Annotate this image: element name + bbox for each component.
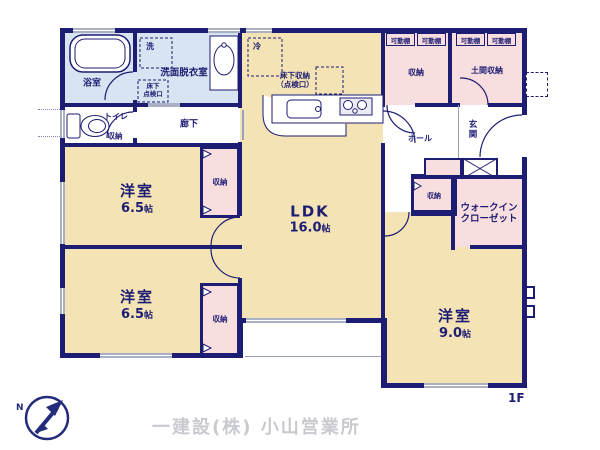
toilet-label: トイレ (104, 112, 128, 122)
toilet-tank (67, 114, 80, 138)
wic-line2: クローゼット (460, 214, 517, 225)
underfloor-line1: 床下収納 (276, 71, 314, 80)
room-size: 6.5 (121, 201, 144, 216)
doma-door-arc (460, 78, 488, 105)
bath-label: 浴室 (83, 79, 101, 90)
bath-door-arc (105, 72, 133, 100)
genkan-label: 玄 関 (469, 120, 478, 140)
room-name: LDK (289, 203, 330, 221)
washroom-label: 洗面脱衣室 (160, 67, 208, 78)
room-size: 16.0 (289, 221, 321, 236)
company-name: 一建設(株) 小山営業所 (152, 413, 361, 439)
genkan-char2: 関 (469, 130, 478, 140)
closet-door-tick (203, 344, 211, 352)
bedroom3-label: 洋室 9.0帖 (438, 305, 472, 341)
faucet-icon (316, 107, 321, 112)
room-size-unit: 帖 (144, 311, 153, 321)
closet-door-tick (203, 150, 211, 158)
hall-storage-label: 収納 (427, 192, 441, 200)
bedroom3-door-arc (385, 212, 409, 236)
burner-icon (344, 101, 353, 110)
compass-north-letter: N (16, 403, 24, 413)
closet-door-tick (203, 288, 211, 296)
vanity-faucet-icon (222, 43, 226, 47)
underfloor-ldk-label: 床下収納 （点検口） (276, 71, 314, 89)
fridge-label: 冷 (253, 42, 261, 52)
underfloor-line2: 点検口 (143, 91, 163, 99)
bedroom1-label: 洋室 6.5帖 (120, 180, 154, 216)
entrance-door-arc (480, 115, 522, 157)
burner-icon (358, 101, 367, 110)
underfloor-line2: （点検口） (276, 80, 314, 89)
compass-icon: N (16, 397, 68, 439)
ldk-label: LDK 16.0帖 (289, 203, 330, 236)
underfloor-hatch-ldk (316, 67, 343, 94)
room-size-unit: 帖 (322, 225, 331, 235)
room-size: 9.0 (439, 326, 462, 341)
genkan-char1: 玄 (469, 120, 478, 130)
wic-line1: ウォークイン (460, 203, 517, 214)
washer-dashed-box (140, 38, 172, 68)
burner-icon (353, 109, 357, 113)
toilet-storage-label: 収納 (108, 132, 123, 141)
room-name: 洋室 (120, 286, 154, 307)
hall-label: ホール (408, 134, 432, 144)
bedroom2-closet-label: 収納 (213, 315, 228, 324)
floor-tag: 1F (508, 391, 525, 405)
washer-label: 洗 (146, 42, 154, 52)
room-size-unit: 帖 (144, 205, 153, 215)
bedroom1-door-arc (211, 217, 240, 246)
doma-storage-label: 土間収納 (471, 66, 503, 76)
bedroom2-label: 洋室 6.5帖 (120, 286, 154, 322)
room-size: 6.5 (121, 307, 144, 322)
bedroom2-door-arc (211, 249, 240, 278)
room-size-unit: 帖 (462, 330, 471, 340)
bedroom1-closet-label: 収納 (213, 178, 228, 187)
storage-door-arc (387, 105, 415, 133)
closet-door-tick (203, 206, 211, 214)
room-name: 洋室 (120, 180, 154, 201)
storage-top-label: 収納 (408, 68, 424, 78)
wic-label: ウォークイン クローゼット (460, 203, 517, 226)
floorplan-page: 可動棚 可動棚 可動棚 可動棚 (0, 0, 600, 450)
closet-door-tick (414, 182, 421, 190)
underfloor-washroom-label: 床下 点検口 (143, 83, 163, 99)
vanity-basin (214, 45, 234, 75)
room-name: 洋室 (438, 305, 472, 326)
hallway-label: 廊下 (180, 120, 198, 131)
